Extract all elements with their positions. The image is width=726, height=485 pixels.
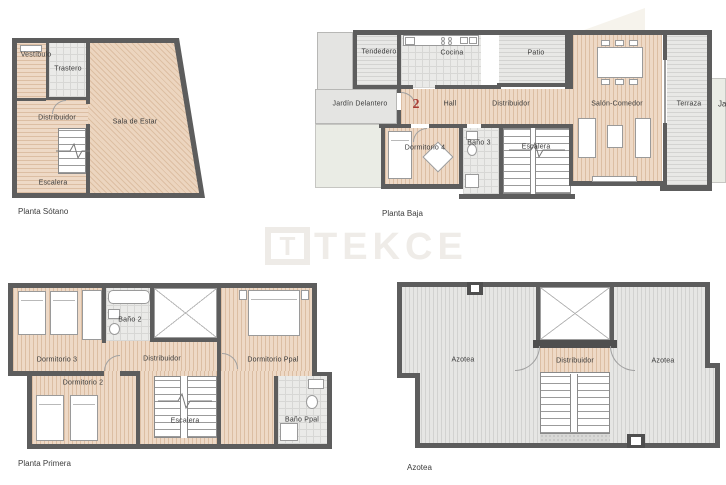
caption-planta-primera: Planta Primera <box>18 459 71 468</box>
wall <box>610 287 614 347</box>
wall <box>381 124 385 188</box>
wardrobe <box>82 290 102 340</box>
room-label-salon-comedor: Salón-Comedor <box>591 101 643 108</box>
room-label-azotea-distribuidor: Distribuidor <box>556 358 594 365</box>
roof-block <box>317 32 353 90</box>
bed <box>18 291 46 335</box>
bathtub <box>108 290 150 304</box>
room-label-dormitorio-2: Dormitorio 2 <box>63 380 104 387</box>
wall <box>136 376 140 444</box>
wall <box>27 371 32 449</box>
toilet <box>306 395 318 409</box>
caption-planta-baja: Planta Baja <box>382 209 423 218</box>
wall <box>381 184 465 189</box>
plan-primera: Dormitorio 3 Baño 2 Distribuidor Dormito… <box>8 283 334 451</box>
room-label-jardin-delantero: Jardín Delantero <box>333 101 388 108</box>
plan-sotano: Vestíbulo Trastero Distribuidor Sala de … <box>12 36 212 201</box>
room-label-distribuidor: Distribuidor <box>143 356 181 363</box>
bed <box>50 291 78 335</box>
tv-bench <box>592 176 637 182</box>
room-label-bano-2: Baño 2 <box>118 317 141 324</box>
floorplan-sheet: T TEKCE Vestíbulo Trastero Distribuidor … <box>0 0 726 485</box>
wall <box>397 110 401 124</box>
plan-azotea: Azotea Distribuidor Azotea <box>397 282 723 449</box>
washer <box>465 174 479 188</box>
bed <box>70 395 98 441</box>
chair <box>615 40 624 46</box>
chimney <box>467 282 483 295</box>
stairs-baja <box>503 128 571 194</box>
caption-planta-sotano: Planta Sótano <box>18 207 68 216</box>
kitchen-sink <box>469 37 477 44</box>
room-label-tendedero: Tendedero <box>362 49 397 56</box>
room-label-bano-3: Baño 3 <box>467 140 490 147</box>
chair <box>629 40 638 46</box>
chair <box>601 40 610 46</box>
wall <box>217 338 221 376</box>
dining-table <box>597 47 643 78</box>
landing-strip <box>540 434 610 443</box>
sink <box>308 379 324 389</box>
chair <box>629 79 638 85</box>
room-label-jardin: Jardín <box>718 100 726 109</box>
room-label-dormitorio-3: Dormitorio 3 <box>37 357 78 364</box>
kitchen-sink <box>460 37 468 44</box>
room-label-azotea-left: Azotea <box>452 357 475 364</box>
wall <box>46 97 88 100</box>
room-label-hall: Hall <box>444 101 457 108</box>
bed <box>36 395 64 441</box>
stairwell-void <box>154 288 217 338</box>
room-label-sala-de-estar: Sala de Estar <box>113 119 158 126</box>
wall <box>217 288 221 343</box>
room-label-distribuidor: Distribuidor <box>492 101 530 108</box>
wall <box>660 185 712 191</box>
wall <box>8 283 13 376</box>
stairwell-void <box>540 287 610 340</box>
unit-number: 2 <box>413 97 420 113</box>
sofa <box>578 118 596 158</box>
room-label-escalera: Escalera <box>171 418 200 425</box>
room-label-azotea-right: Azotea <box>652 358 675 365</box>
room-tendedero <box>357 35 397 85</box>
wall <box>569 35 573 89</box>
wall <box>17 98 46 101</box>
watermark-brand: TEKCE <box>314 226 468 269</box>
stairs-divider <box>530 128 536 194</box>
room-terraza <box>667 35 707 185</box>
wall <box>217 376 221 444</box>
room-jardin <box>712 78 726 183</box>
plan-baja: Tendedero Cocina Patio Jardín Delantero … <box>315 28 726 208</box>
room-label-escalera: Escalera <box>39 180 68 187</box>
room-label-cocina: Cocina <box>441 50 464 57</box>
room-hall-distribuidor <box>401 89 573 124</box>
toilet <box>109 323 120 335</box>
room-label-bano-ppal: Baño Ppal <box>285 417 319 424</box>
stairs-arrow <box>156 391 214 411</box>
stairs-divider <box>570 374 578 432</box>
room-label-dormitorio-4: Dormitorio 4 <box>405 145 446 152</box>
window-line <box>664 60 666 123</box>
stove-burner <box>441 41 445 45</box>
room-label-dormitorio-ppal: Dormitorio Ppal <box>247 357 298 364</box>
wall <box>312 283 317 377</box>
wall <box>32 371 104 376</box>
wall <box>27 444 332 449</box>
bed <box>388 131 412 179</box>
wall <box>86 43 90 104</box>
room-label-terraza: Terraza <box>677 101 702 108</box>
wall <box>327 372 332 449</box>
room-label-vestibulo: Vestíbulo <box>21 52 52 59</box>
room-label-distribuidor: Distribuidor <box>38 115 76 122</box>
front-garden <box>315 124 383 188</box>
nightstand <box>301 290 309 300</box>
shower <box>280 423 298 441</box>
room-patio <box>499 35 565 85</box>
wall <box>150 338 221 342</box>
stairwell-band <box>533 340 617 348</box>
nightstand <box>239 290 247 300</box>
wall <box>459 194 575 199</box>
chimney <box>627 434 645 448</box>
coffee-table <box>607 125 623 148</box>
room-label-patio: Patio <box>528 50 545 57</box>
wall <box>497 83 569 87</box>
stairs-arrow <box>54 140 92 162</box>
stove-burner <box>448 41 452 45</box>
caption-azotea: Azotea <box>407 463 432 472</box>
kitchen-appliance <box>405 37 415 45</box>
watermark-logo-letter: T <box>280 231 296 262</box>
chair <box>615 79 624 85</box>
double-bed <box>248 290 300 336</box>
room-label-trastero: Trastero <box>54 66 81 73</box>
watermark-logo: T <box>265 227 310 265</box>
chair <box>601 79 610 85</box>
room-label-escalera: Escalera <box>522 144 551 151</box>
sofa <box>635 118 651 158</box>
wall <box>569 124 573 186</box>
